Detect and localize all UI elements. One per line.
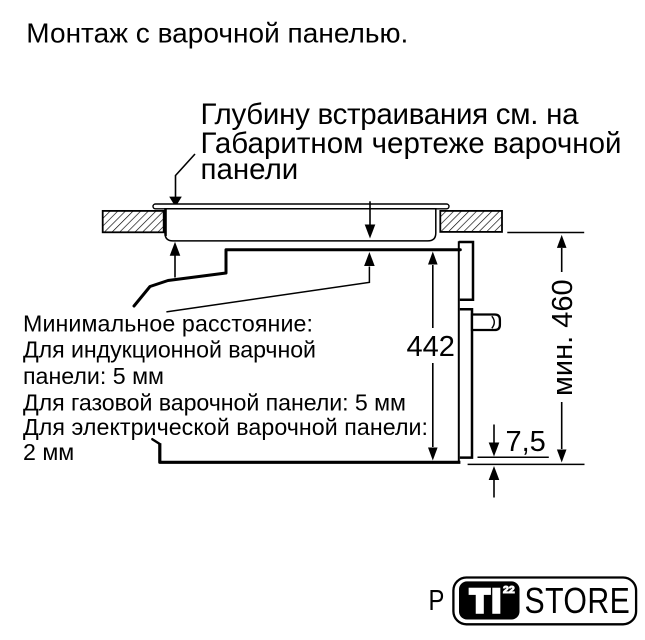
svg-text:TI: TI bbox=[470, 583, 503, 619]
svg-text:STORE: STORE bbox=[525, 582, 631, 622]
svg-text:2 мм: 2 мм bbox=[23, 439, 74, 465]
svg-text:Р: Р bbox=[429, 584, 445, 617]
svg-text:442: 442 bbox=[407, 331, 455, 363]
svg-text:Для индукционной варчной: Для индукционной варчной bbox=[23, 337, 316, 363]
svg-text:панели: 5 мм: панели: 5 мм bbox=[23, 363, 164, 389]
svg-text:мин. 460: мин. 460 bbox=[547, 279, 579, 396]
svg-text:Для электрической варочной пан: Для электрической варочной панели: bbox=[23, 414, 428, 440]
svg-text:панели: панели bbox=[201, 153, 299, 186]
svg-text:7,5: 7,5 bbox=[506, 426, 546, 458]
svg-text:Для газовой варочной панели: 5: Для газовой варочной панели: 5 мм bbox=[23, 390, 406, 416]
svg-text:22: 22 bbox=[503, 584, 515, 596]
svg-text:Минимальное расстояние:: Минимальное расстояние: bbox=[23, 311, 313, 337]
svg-text:Монтаж с варочной панелью.: Монтаж с варочной панелью. bbox=[26, 18, 408, 49]
